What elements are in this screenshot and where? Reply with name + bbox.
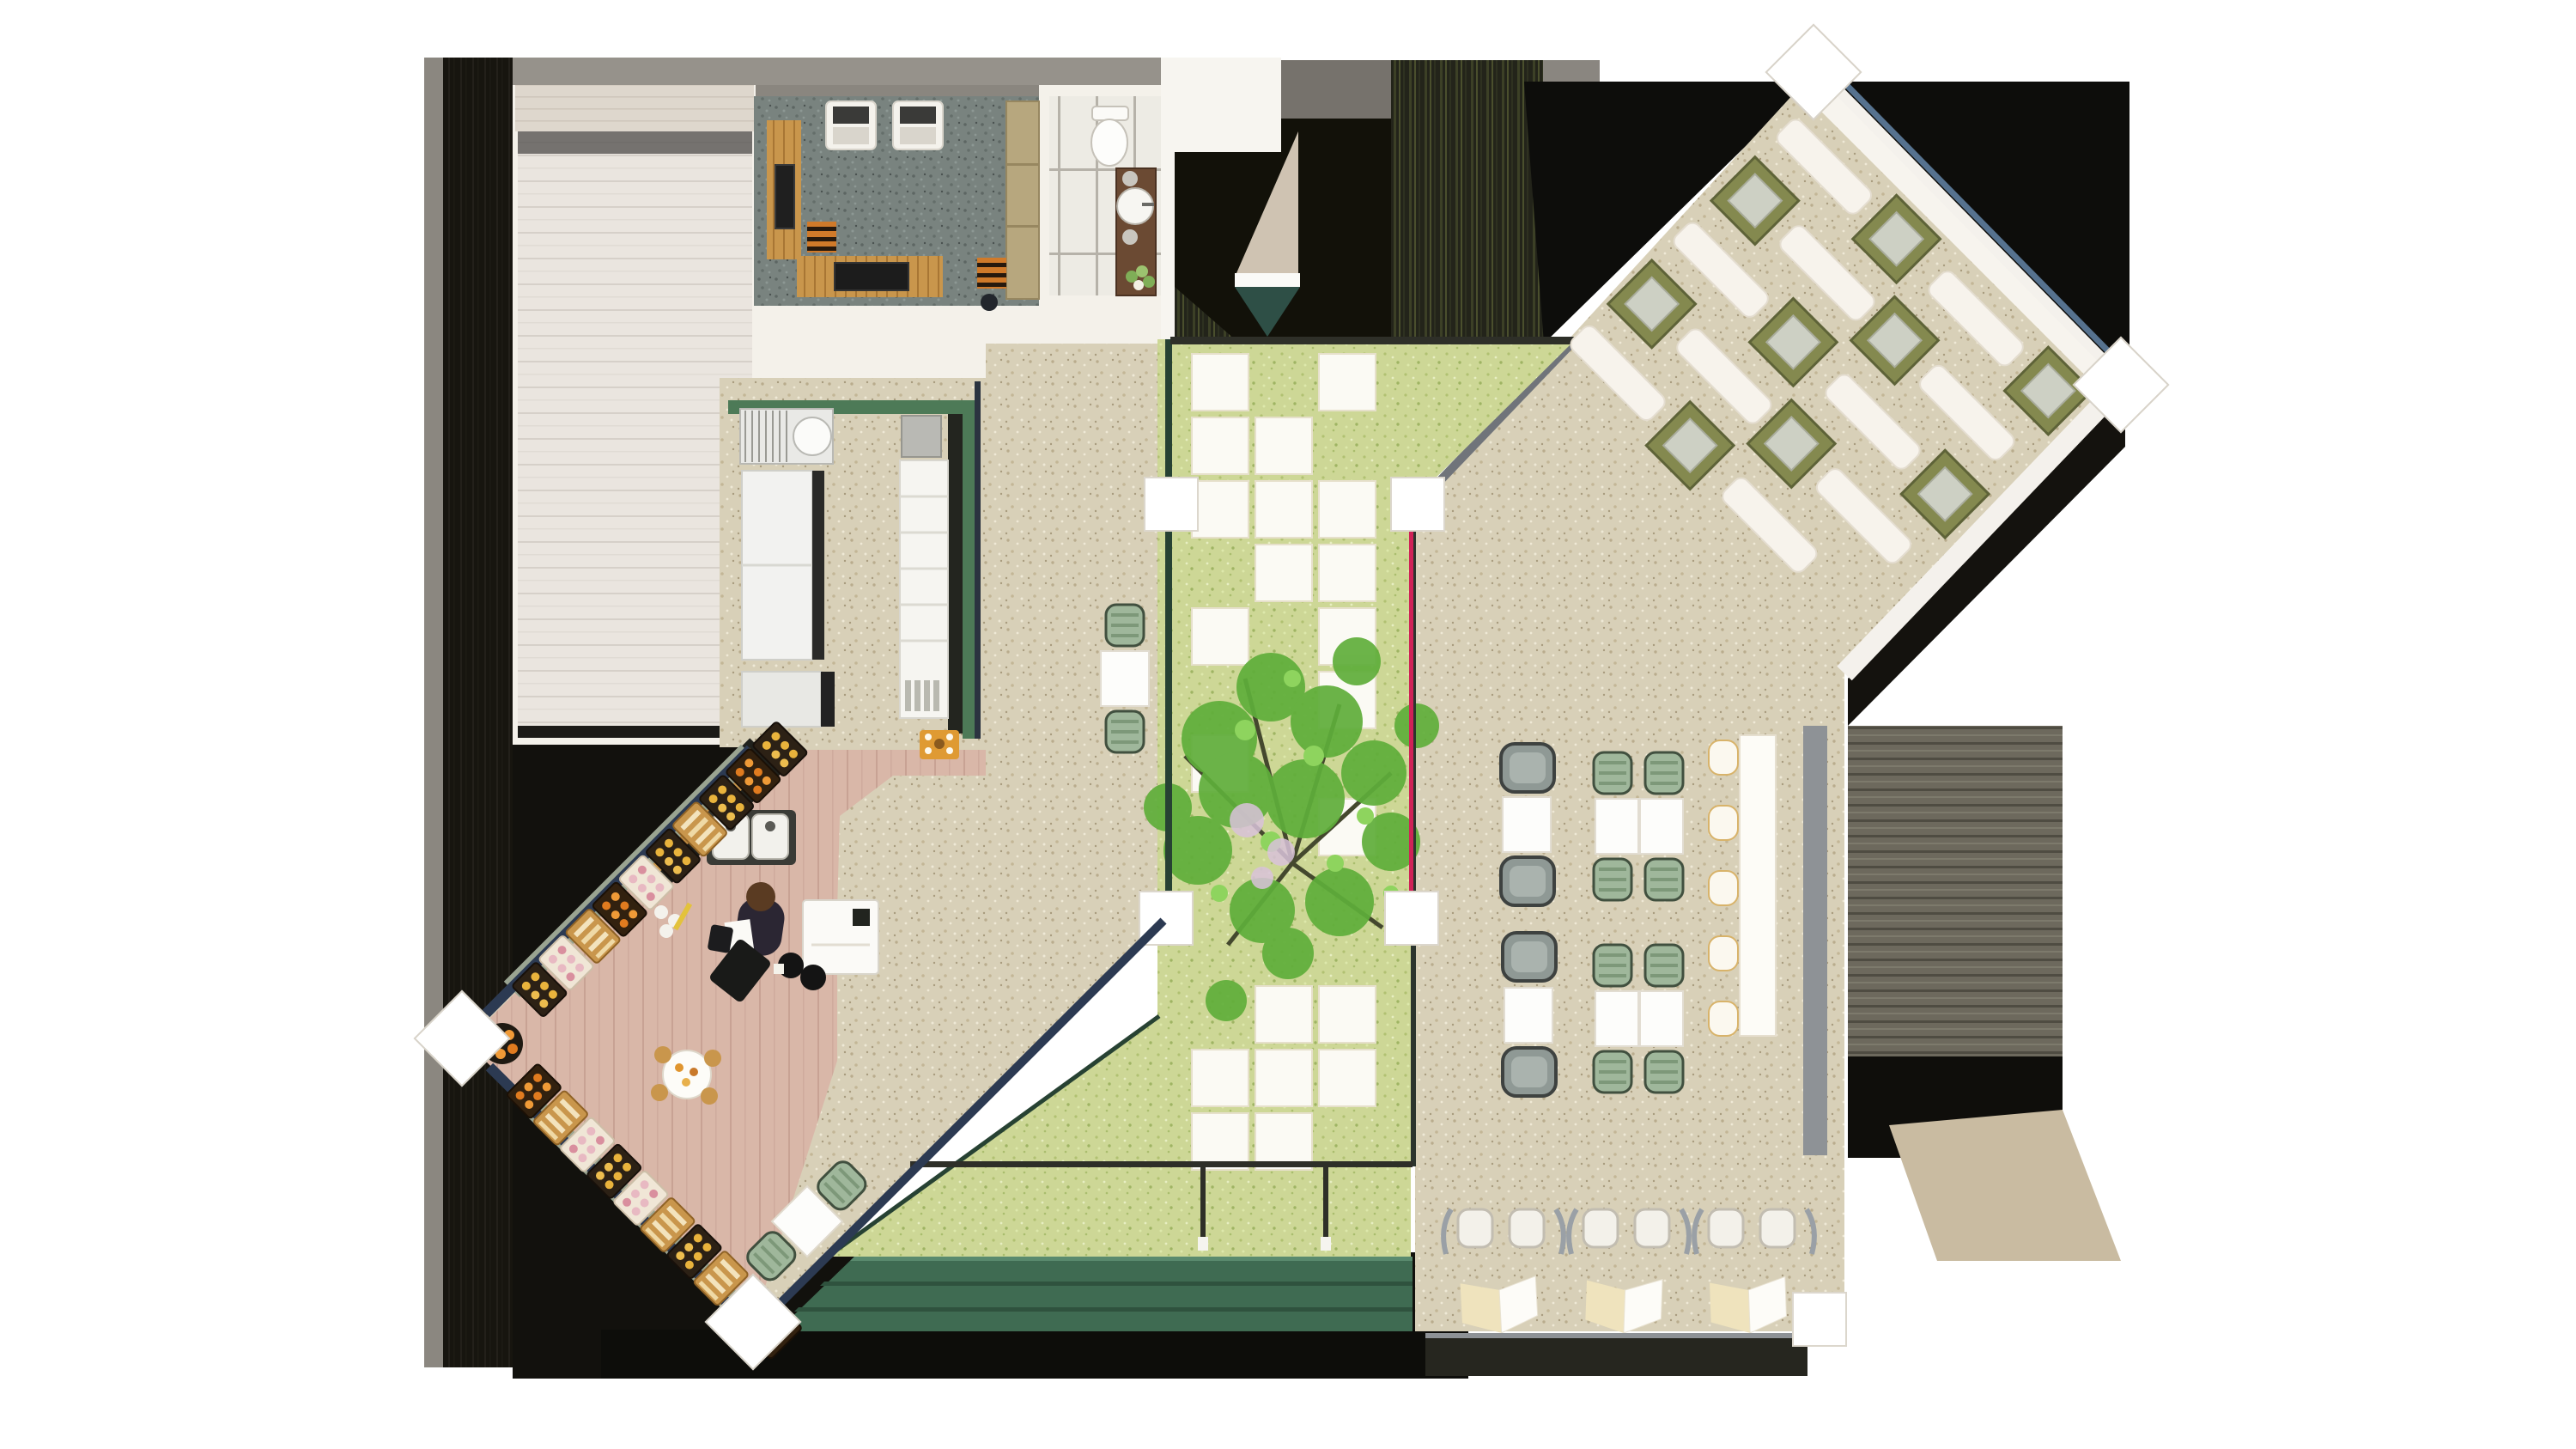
towel-roll [1122,171,1138,186]
green-louver-band [777,1257,1413,1331]
table [1101,651,1149,706]
counter-stool [1709,806,1738,840]
wood-stool [651,1084,668,1101]
gray-two-top [1503,933,1556,1096]
kitchen-outer-line [975,381,981,739]
striped-pouf [977,258,1006,289]
counter-stool [1709,1002,1738,1036]
bathroom [1049,96,1164,295]
column-square [1391,478,1444,531]
wardrobe-right [1006,101,1039,299]
lounge-armchair [893,101,943,149]
gray-two-top [1501,744,1554,905]
kitchen-sink [793,417,831,455]
wood-stool [654,1046,671,1063]
wood-stool [704,1050,721,1067]
kitchen-wall-right [963,400,975,739]
wood-stool [701,1087,718,1105]
media-sideboard [797,256,943,297]
plank-room [518,131,752,738]
floor-plant [981,294,998,311]
kitchen-wall-shadow [948,414,963,734]
tan-wall-wedge [1889,1110,2121,1261]
wall-notch-white [1161,58,1281,152]
column-square [1793,1293,1846,1346]
wardrobe-left [767,120,801,259]
floor-plan-canvas [0,0,2576,1449]
plank-room-bottom-edge [518,726,752,738]
shadow-gray-strip-left [424,58,443,1367]
floor-plan-rendering [0,0,2576,1449]
fridge-counter [742,471,824,660]
path-two-top [1101,605,1149,752]
faucet [1142,203,1154,206]
sage-chair [1106,711,1144,752]
lounge-armchair [826,101,876,149]
entry-white-step [1235,273,1300,287]
striped-pouf [807,222,836,253]
counter-stool [1709,936,1738,971]
bottom-wall-edge [1425,1333,1807,1338]
shelf-column [900,416,948,718]
hedge-shadow-band [1391,60,1544,339]
service-counter [803,900,878,974]
courtyard-wall-left [1165,339,1172,896]
right-wall-gray-strip [1803,726,1827,1155]
towel-roll [1122,229,1138,245]
grill-sink-unit [740,409,833,464]
roof-band [513,58,1172,85]
counter-stool [1709,871,1738,905]
column-square [1385,892,1438,945]
courtyard-rail-top [1170,337,1574,344]
pos-terminal [708,924,734,953]
sage-chair [1106,605,1144,646]
wall-strip-white [1161,82,1175,344]
bottom-wall-band [1425,1333,1807,1376]
louver-shadow-right [1848,726,2063,1056]
deck-band [515,85,754,131]
plank-room-top-shadow [518,131,752,154]
shadow-black-band-left [443,58,515,1367]
lower-cabinet [742,672,835,727]
column-square [1145,478,1198,531]
toilet [1091,107,1128,166]
counter-stool [1709,740,1738,775]
magenta-accent-line [1409,531,1413,892]
lounge-room [754,96,1039,311]
